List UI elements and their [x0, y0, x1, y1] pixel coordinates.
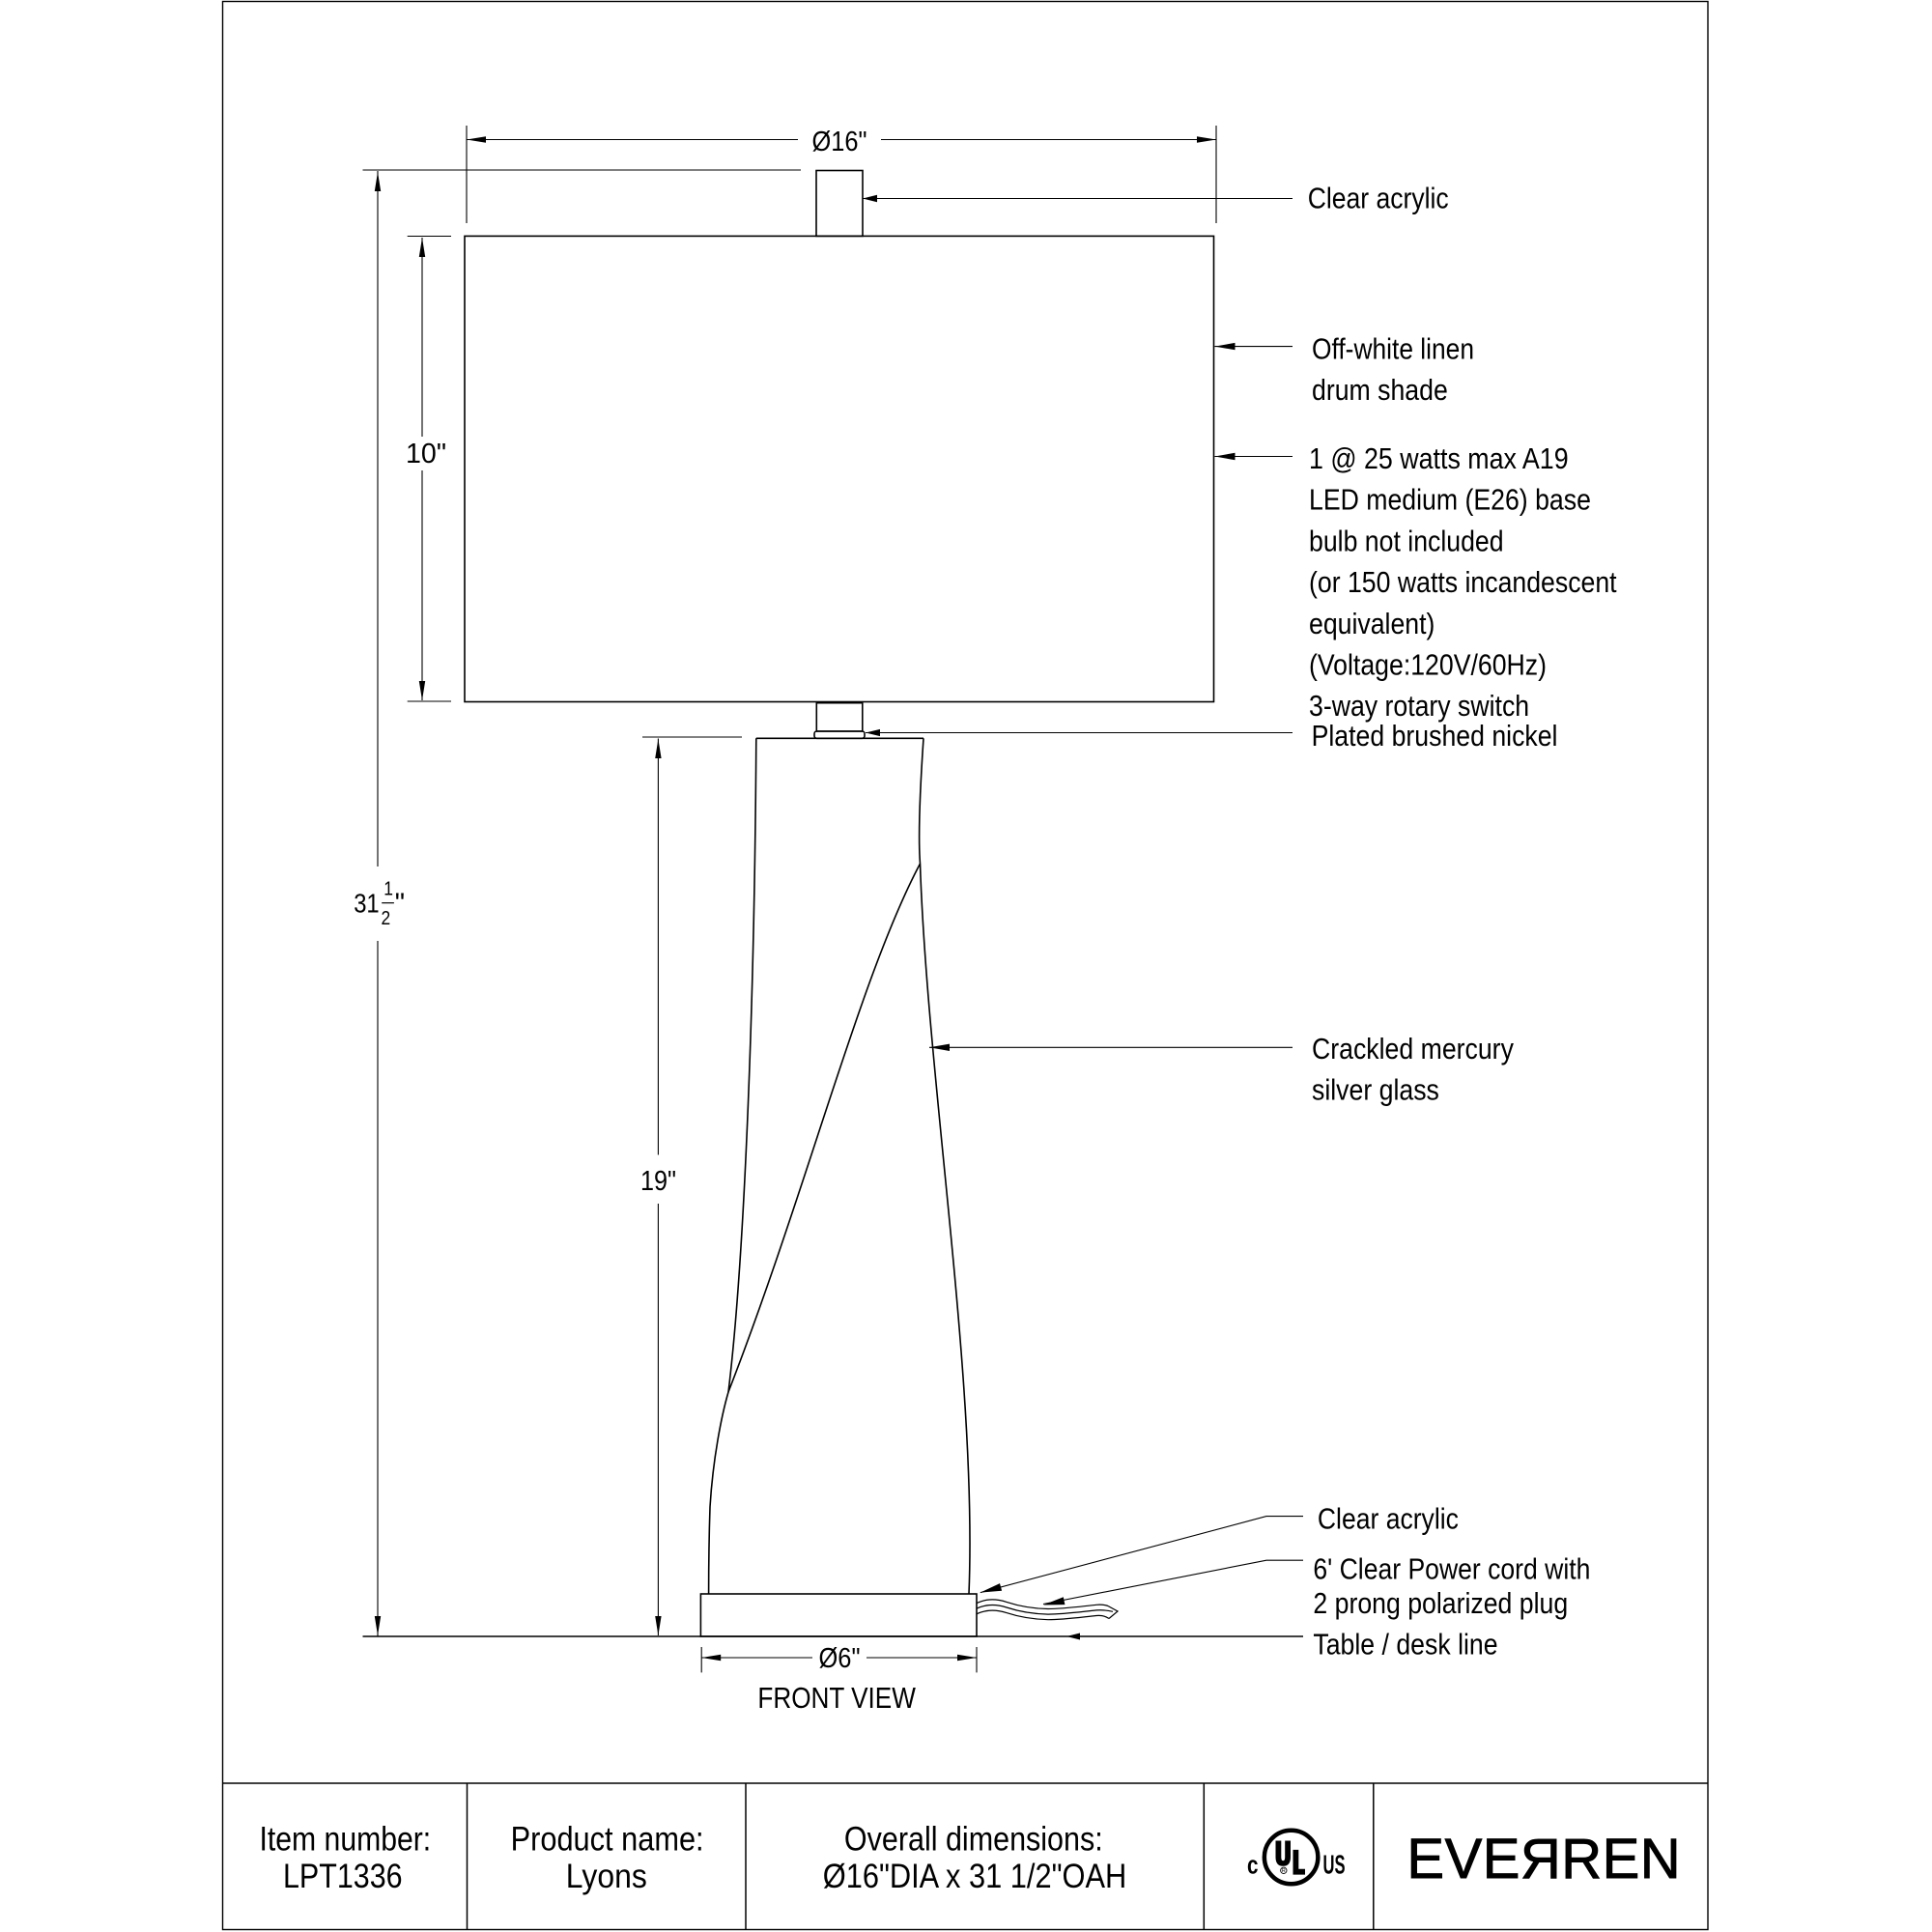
- svg-text:Ø6": Ø6": [819, 1643, 861, 1674]
- svg-text:10": 10": [406, 439, 446, 469]
- svg-text:Table / desk line: Table / desk line: [1313, 1628, 1497, 1662]
- svg-text:19": 19": [640, 1166, 676, 1197]
- svg-text:Off-white linen: Off-white linen: [1312, 331, 1474, 365]
- svg-text:Crackled mercury: Crackled mercury: [1312, 1032, 1514, 1065]
- svg-text:6' Clear Power cord with: 6' Clear Power cord with: [1313, 1552, 1590, 1586]
- svg-text:Product name:: Product name:: [511, 1820, 704, 1858]
- svg-text:equivalent): equivalent): [1309, 607, 1435, 640]
- svg-text:Plated brushed nickel: Plated brushed nickel: [1312, 719, 1558, 753]
- svg-text:c: c: [1247, 1851, 1259, 1880]
- svg-text:FRONT VIEW: FRONT VIEW: [757, 1681, 916, 1715]
- svg-text:R: R: [1282, 1868, 1286, 1874]
- svg-text:drum shade: drum shade: [1312, 373, 1448, 407]
- svg-text:Item number:: Item number:: [260, 1820, 432, 1858]
- svg-text:Ø16": Ø16": [812, 127, 867, 157]
- svg-text:silver glass: silver glass: [1312, 1073, 1439, 1107]
- svg-text:2: 2: [382, 908, 391, 929]
- svg-text:Ø16"DIA x 31 1/2"OAH: Ø16"DIA x 31 1/2"OAH: [823, 1858, 1127, 1895]
- svg-text:Clear acrylic: Clear acrylic: [1308, 181, 1449, 214]
- svg-text:": ": [395, 889, 405, 920]
- svg-text:EVEЯREN: EVEЯREN: [1406, 1828, 1680, 1890]
- svg-text:1: 1: [384, 878, 393, 899]
- svg-text:US: US: [1323, 1850, 1346, 1880]
- svg-text:3-way rotary switch: 3-way rotary switch: [1309, 689, 1529, 723]
- svg-text:Overall dimensions:: Overall dimensions:: [844, 1820, 1103, 1858]
- svg-text:2 prong polarized plug: 2 prong polarized plug: [1313, 1586, 1568, 1620]
- svg-text:bulb not included: bulb not included: [1309, 524, 1504, 557]
- svg-text:LPT1336: LPT1336: [283, 1858, 403, 1895]
- svg-text:(or 150 watts incandescent: (or 150 watts incandescent: [1309, 565, 1617, 599]
- svg-text:1 @ 25 watts max A19: 1 @ 25 watts max A19: [1309, 441, 1569, 475]
- svg-text:31: 31: [354, 889, 380, 919]
- svg-text:(Voltage:120V/60Hz): (Voltage:120V/60Hz): [1309, 648, 1547, 682]
- svg-text:LED medium (E26) base: LED medium (E26) base: [1309, 483, 1591, 517]
- svg-text:Lyons: Lyons: [566, 1858, 647, 1895]
- svg-text:Clear acrylic: Clear acrylic: [1318, 1502, 1459, 1536]
